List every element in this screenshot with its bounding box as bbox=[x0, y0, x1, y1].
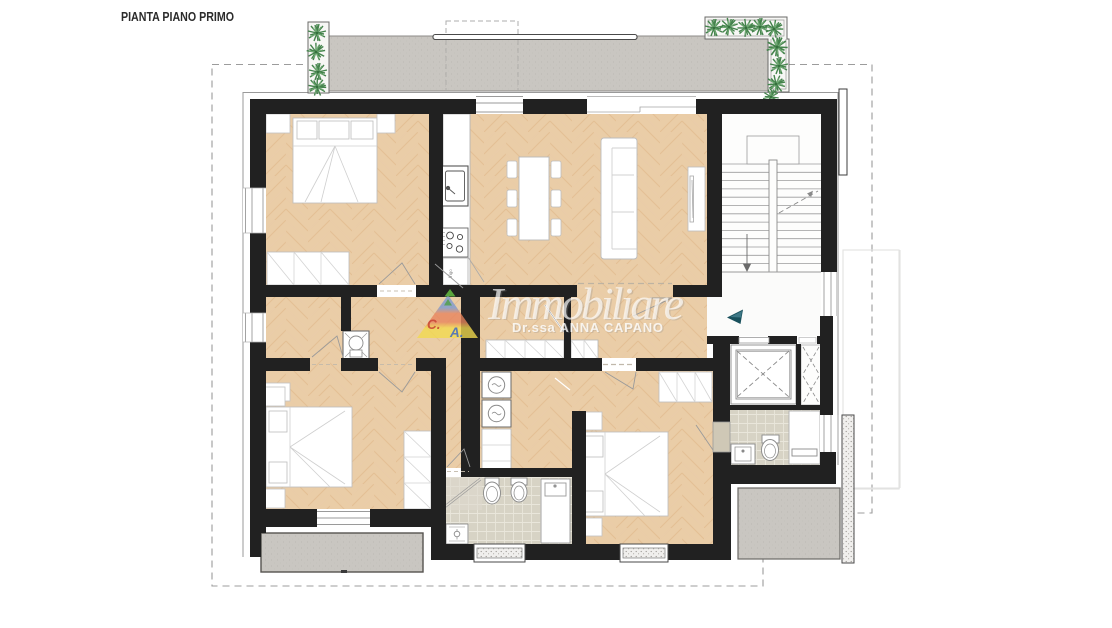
svg-text:C.: C. bbox=[427, 317, 441, 332]
svg-text:frigo: frigo bbox=[448, 269, 453, 278]
svg-text:A.: A. bbox=[449, 325, 464, 340]
svg-text:Dr.ssa ANNA CAPANO: Dr.ssa ANNA CAPANO bbox=[512, 320, 664, 335]
svg-text:PIANTA PIANO PRIMO: PIANTA PIANO PRIMO bbox=[121, 9, 234, 24]
